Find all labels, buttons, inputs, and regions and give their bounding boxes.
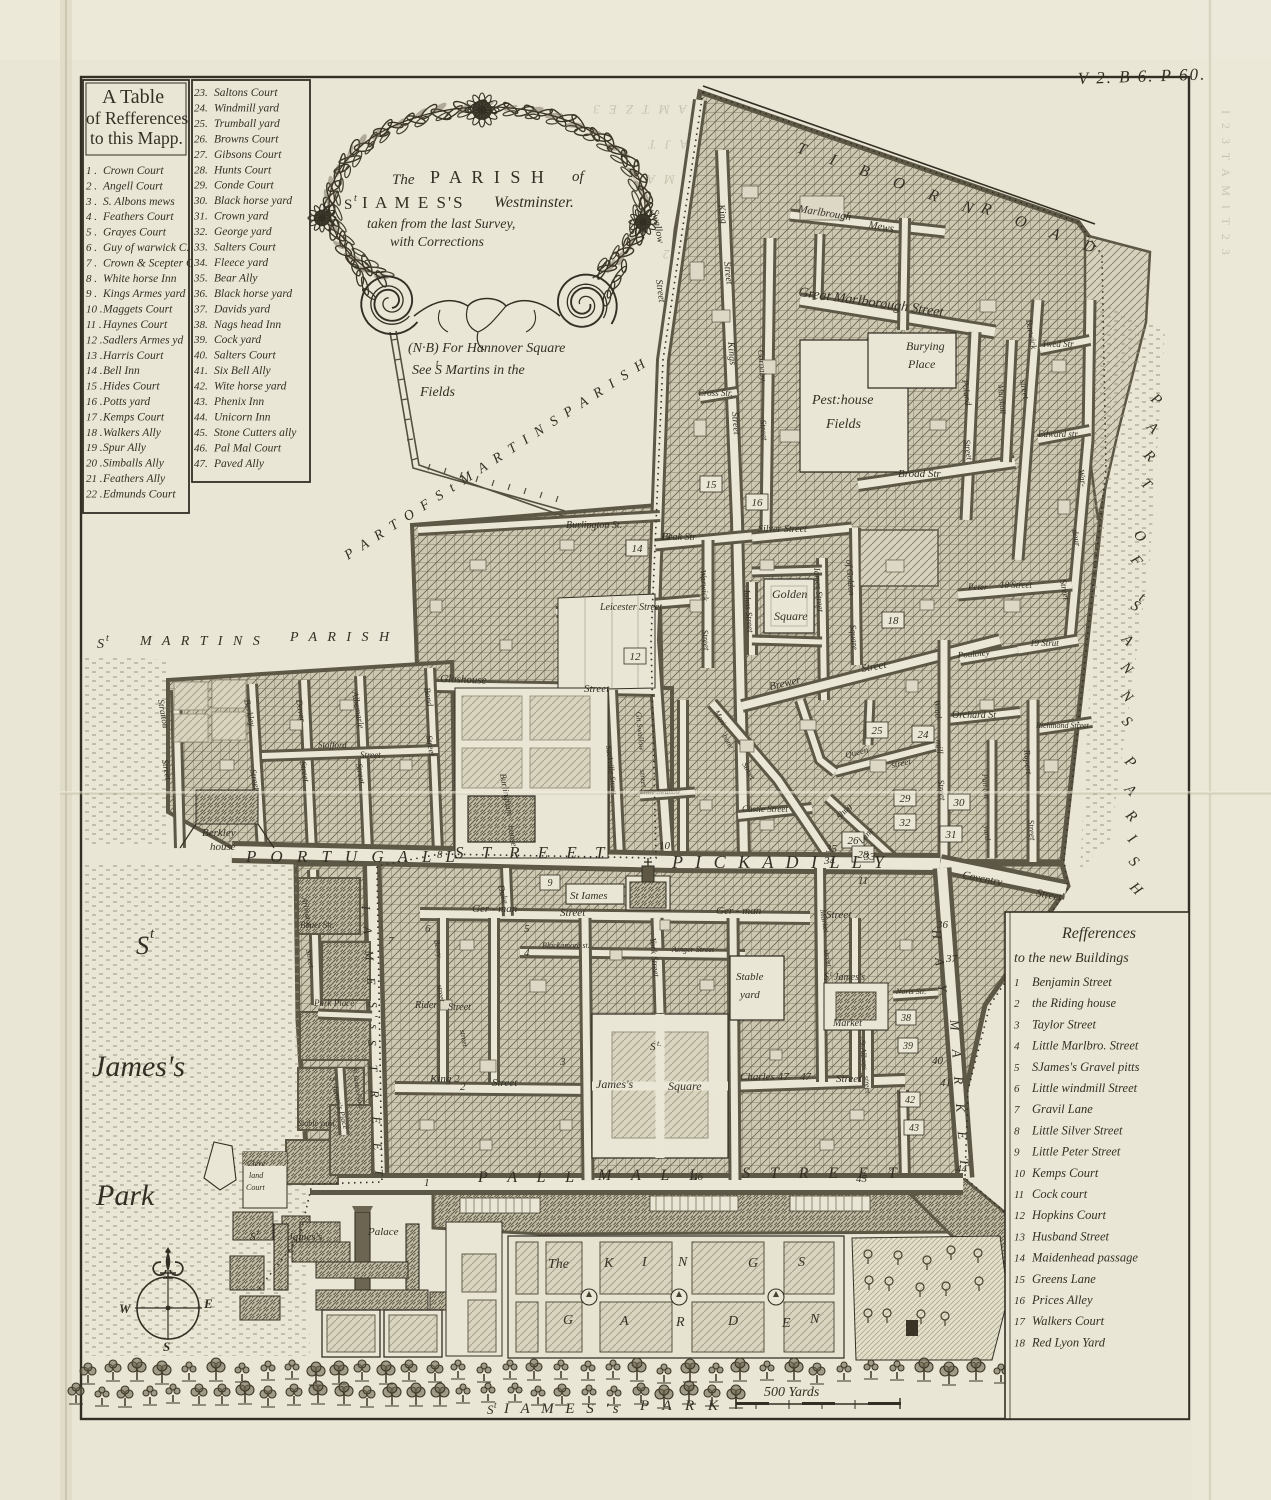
svg-text:P A L L: P A L L: [477, 1169, 582, 1186]
svg-text:Feathers Court: Feathers Court: [102, 211, 174, 223]
svg-text:Blackamore st.: Blackamore st.: [542, 941, 590, 950]
svg-text:30.: 30.: [193, 195, 208, 207]
svg-text:yard: yard: [982, 824, 992, 841]
svg-text:yard: yard: [739, 989, 760, 1001]
svg-text:38: 38: [900, 1013, 911, 1024]
svg-text:11: 11: [858, 875, 868, 887]
svg-text:Cleve: Cleve: [247, 1159, 266, 1168]
svg-text:11 .: 11 .: [86, 319, 102, 331]
svg-text:41: 41: [940, 1077, 951, 1089]
svg-text:S T R E E T: S T R E E T: [455, 843, 612, 862]
svg-text:Harris Court: Harris Court: [102, 350, 164, 362]
svg-text:7: 7: [1014, 1104, 1020, 1116]
svg-text:James's: James's: [92, 1050, 185, 1083]
svg-text:W: W: [119, 1301, 132, 1316]
svg-text:Black horse yard: Black horse yard: [214, 195, 292, 207]
svg-text:Wite horse yard: Wite horse yard: [214, 381, 287, 393]
svg-text:St Iames: St Iames: [570, 890, 608, 902]
svg-text:Orchard St: Orchard St: [952, 710, 996, 721]
svg-text:7 .: 7 .: [86, 257, 97, 269]
svg-text:4: 4: [524, 947, 530, 959]
svg-text:12: 12: [1014, 1210, 1026, 1222]
svg-text:Street: Street: [560, 907, 586, 919]
svg-text:10 .: 10 .: [86, 304, 103, 316]
svg-text:Silver Street: Silver Street: [758, 524, 807, 535]
svg-text:Noris Str.: Noris Str.: [895, 987, 926, 996]
svg-text:E: E: [203, 1296, 213, 1311]
svg-text:of Refferences: of Refferences: [86, 108, 188, 128]
svg-text:31.: 31.: [193, 211, 208, 223]
svg-text:A: A: [619, 1314, 629, 1329]
svg-text:4: 4: [1014, 1041, 1020, 1053]
svg-text:17: 17: [1014, 1316, 1026, 1328]
svg-text:6 .: 6 .: [86, 242, 97, 254]
svg-text:Walkers Court: Walkers Court: [1032, 1314, 1105, 1328]
svg-text:P A R I S H: P A R I S H: [289, 630, 393, 645]
svg-text:Broad Str: Broad Str: [898, 468, 941, 480]
svg-text:Hunts Court: Hunts Court: [213, 164, 272, 176]
svg-text:Street: Street: [729, 411, 742, 435]
svg-text:18: 18: [1014, 1337, 1026, 1349]
svg-text:31: 31: [945, 829, 957, 841]
svg-text:Kings: Kings: [725, 340, 738, 365]
svg-text:S: S: [487, 1402, 494, 1417]
svg-text:Street: Street: [448, 1002, 471, 1013]
svg-text:Edward str: Edward str: [1037, 429, 1078, 439]
svg-text:Potts yard: Potts yard: [102, 396, 150, 408]
svg-text:Street: Street: [584, 683, 610, 695]
svg-text:Fields: Fields: [419, 385, 456, 400]
svg-text:Phenix Inn: Phenix Inn: [213, 396, 264, 408]
svg-text:Wind-: Wind-: [932, 699, 944, 721]
svg-text:500 Yards: 500 Yards: [764, 1385, 820, 1400]
svg-text:Ger - man: Ger - man: [472, 903, 518, 915]
svg-text:10: 10: [1014, 1168, 1026, 1180]
svg-text:Salters Court: Salters Court: [214, 242, 276, 254]
svg-text:22 .: 22 .: [86, 488, 103, 500]
svg-text:Angell Court: Angell Court: [102, 180, 164, 192]
svg-text:George yard: George yard: [214, 226, 272, 238]
svg-text:8: 8: [1014, 1125, 1020, 1137]
svg-text:N: N: [677, 1255, 688, 1270]
svg-text:47.: 47.: [194, 458, 208, 470]
svg-text:Beak Str: Beak Str: [662, 532, 696, 543]
svg-text:Ger - man: Ger - man: [716, 905, 762, 917]
svg-text:Pal Mal Court: Pal Mal Court: [213, 442, 282, 454]
svg-text:1 .: 1 .: [86, 165, 97, 177]
svg-text:Street: Street: [1026, 819, 1038, 841]
svg-text:32.: 32.: [193, 226, 208, 238]
svg-text:K: K: [603, 1256, 614, 1271]
svg-text:Walkers Ally: Walkers Ally: [103, 427, 162, 439]
svg-text:Husband Street: Husband Street: [1031, 1229, 1109, 1243]
svg-text:Maggets Court: Maggets Court: [102, 304, 173, 316]
svg-text:10: 10: [659, 840, 671, 852]
svg-text:Refferences: Refferences: [1061, 925, 1136, 942]
svg-text:S: S: [650, 1041, 656, 1053]
svg-text:Square: Square: [668, 1079, 702, 1093]
svg-text:Richmond Street: Richmond Street: [1035, 721, 1090, 730]
svg-text:Saltons Court: Saltons Court: [214, 87, 278, 99]
svg-text:Square: Square: [774, 609, 808, 623]
svg-text:Six Bell Ally: Six Bell Ally: [214, 365, 272, 377]
svg-text:t.: t.: [657, 1039, 661, 1048]
svg-text:S: S: [824, 972, 829, 983]
svg-text:Stable: Stable: [736, 971, 764, 983]
svg-text:I A M E S 's: I A M E S 's: [503, 1401, 623, 1417]
svg-text:34.: 34.: [193, 257, 208, 269]
svg-text:S: S: [97, 637, 104, 652]
svg-text:1: 1: [1014, 977, 1020, 989]
svg-text:Castle Street: Castle Street: [742, 804, 788, 814]
svg-text:21 .: 21 .: [86, 473, 103, 485]
svg-text:12: 12: [630, 651, 642, 663]
svg-text:38.: 38.: [193, 319, 208, 331]
svg-text:I 2 3 T A M I T 2 3: I 2 3 T A M I T 2 3: [1219, 110, 1233, 258]
svg-text:24: 24: [918, 729, 930, 741]
svg-text:to the new Buildings: to the new Buildings: [1014, 951, 1129, 966]
svg-text:The: The: [548, 1257, 569, 1272]
svg-text:James's: James's: [288, 1231, 322, 1243]
svg-text:4 .: 4 .: [86, 211, 97, 223]
svg-text:Park: Park: [95, 1179, 155, 1212]
svg-text:Kings Armes yard: Kings Armes yard: [102, 288, 186, 300]
svg-text:Little Marlbro. Street: Little Marlbro. Street: [1031, 1039, 1139, 1053]
svg-text:13 .: 13 .: [86, 350, 103, 362]
svg-text:15: 15: [706, 479, 718, 491]
svg-text:Spur Ally: Spur Ally: [103, 442, 147, 454]
svg-text:S: S: [163, 1339, 170, 1354]
svg-text:12 .: 12 .: [86, 334, 103, 346]
svg-text:the Riding house: the Riding house: [1032, 996, 1116, 1010]
svg-text:Cross Str.: Cross Str.: [698, 388, 733, 398]
svg-text:Little windmill Street: Little windmill Street: [1031, 1081, 1138, 1095]
svg-text:18 Street: 18 Street: [1000, 580, 1032, 590]
svg-text:Nags head Inn: Nags head Inn: [213, 319, 281, 331]
svg-text:Street: Street: [492, 1077, 518, 1089]
svg-text:Sadlers Armes yd: Sadlers Armes yd: [103, 334, 184, 346]
svg-text:Gravil Lane: Gravil Lane: [1032, 1102, 1093, 1116]
svg-text:mill: mill: [934, 739, 945, 754]
svg-text:14 .: 14 .: [86, 365, 103, 377]
svg-text:26.: 26.: [194, 133, 208, 145]
svg-text:35.: 35.: [193, 272, 208, 284]
svg-text:Place: Place: [907, 357, 936, 371]
svg-text:Peter: Peter: [967, 582, 988, 592]
svg-text:S: S: [344, 197, 352, 213]
svg-text:16: 16: [752, 497, 764, 509]
svg-text:(N·B) For Hannover Square: (N·B) For Hannover Square: [408, 341, 565, 356]
svg-text:taken from the last Survey,: taken from the last Survey,: [367, 217, 515, 232]
svg-text:Westminster.: Westminster.: [494, 194, 574, 211]
svg-text:44.: 44.: [194, 411, 208, 423]
svg-text:Davids yard: Davids yard: [213, 303, 270, 315]
svg-text:M A R T I N S: M A R T I N S: [139, 634, 263, 649]
svg-text:Street: Street: [836, 1073, 862, 1085]
svg-text:S: S: [136, 931, 149, 960]
svg-text:Gibsons Court: Gibsons Court: [214, 149, 282, 161]
svg-text:15 .: 15 .: [86, 381, 103, 393]
svg-text:16: 16: [1014, 1295, 1026, 1307]
svg-text:Kemps Court: Kemps Court: [1031, 1166, 1099, 1180]
svg-text:Palace: Palace: [367, 1226, 399, 1238]
svg-text:S T R E E T: S T R E E T: [742, 1165, 905, 1182]
svg-text:Guy of warwick C.: Guy of warwick C.: [103, 242, 189, 254]
svg-text:Bear Ally: Bear Ally: [214, 272, 258, 284]
svg-text:to this Mapp.: to this Mapp.: [90, 128, 183, 148]
svg-text:2: 2: [460, 1081, 466, 1093]
svg-text:Fleece yard: Fleece yard: [213, 257, 268, 269]
svg-text:Rider: Rider: [414, 1000, 437, 1011]
svg-text:R: R: [675, 1315, 685, 1330]
svg-text:Cock court: Cock court: [1032, 1187, 1088, 1201]
svg-text:41.: 41.: [194, 365, 208, 377]
svg-text:5: 5: [1014, 1062, 1020, 1074]
svg-text:2 .: 2 .: [86, 180, 97, 192]
svg-text:Street: Street: [360, 750, 381, 760]
svg-text:20 .: 20 .: [86, 458, 103, 470]
svg-text:Fields: Fields: [825, 417, 862, 432]
svg-text:Hopkins Court: Hopkins Court: [1031, 1208, 1106, 1222]
svg-text:45.: 45.: [194, 427, 208, 439]
svg-text:Glashouse: Glashouse: [440, 673, 487, 687]
svg-text:house: house: [210, 841, 236, 853]
svg-text:Kemps Court: Kemps Court: [102, 411, 165, 423]
svg-text:Stafford: Stafford: [318, 740, 347, 750]
svg-text:D: D: [727, 1314, 738, 1329]
svg-text:33.: 33.: [193, 242, 208, 254]
svg-text:25.: 25.: [194, 118, 208, 130]
svg-text:43.: 43.: [194, 396, 208, 408]
svg-text:29.: 29.: [194, 180, 208, 192]
svg-text:Trumball yard: Trumball yard: [214, 118, 280, 130]
svg-text:9: 9: [1014, 1147, 1020, 1159]
svg-text:M A L L: M A L L: [597, 1167, 706, 1184]
svg-text:Stone Cutters ally: Stone Cutters ally: [214, 427, 297, 439]
svg-text:SJames's Gravel pitts: SJames's Gravel pitts: [1032, 1060, 1140, 1074]
svg-text:32: 32: [899, 817, 912, 829]
svg-text:Street: Street: [826, 909, 852, 921]
svg-text:42: 42: [905, 1095, 915, 1106]
svg-text:25: 25: [872, 725, 884, 737]
svg-text:I A M T Z E 3: I A M T Z E 3: [590, 102, 701, 117]
svg-text:S: S: [798, 1255, 805, 1270]
svg-text:1: 1: [424, 1177, 430, 1189]
svg-text:Bell Inn: Bell Inn: [103, 365, 140, 377]
svg-text:27.: 27.: [194, 149, 208, 161]
svg-text:3: 3: [559, 1056, 566, 1068]
svg-text:King 2: King 2: [429, 1073, 460, 1085]
svg-text:Berkley: Berkley: [202, 827, 236, 839]
svg-text:Street: Street: [936, 779, 948, 801]
svg-text:14: 14: [632, 543, 644, 555]
svg-text:Simballs Ally: Simballs Ally: [103, 458, 165, 470]
svg-text:with Corrections: with Corrections: [390, 235, 485, 250]
svg-text:Greens Lane: Greens Lane: [1032, 1272, 1096, 1286]
svg-text:3 .: 3 .: [85, 196, 97, 208]
svg-text:Prices Alley: Prices Alley: [1031, 1293, 1093, 1307]
svg-text:Market: Market: [832, 1018, 862, 1029]
svg-text:P O R T U G A L L: P O R T U G A L L: [245, 847, 460, 866]
svg-text:Pest:house: Pest:house: [811, 393, 873, 408]
svg-text:P I C K A D I L L Y: P I C K A D I L L Y: [671, 852, 888, 872]
svg-text:Crown Court: Crown Court: [103, 165, 164, 177]
svg-text:39: 39: [902, 1041, 913, 1052]
svg-text:Burlington St.: Burlington St.: [566, 520, 622, 531]
svg-text:Benjamin Street: Benjamin Street: [1032, 975, 1112, 989]
svg-text:Court: Court: [246, 1183, 265, 1192]
svg-text:14: 14: [1014, 1253, 1026, 1265]
svg-text:9 .: 9 .: [86, 288, 97, 300]
svg-text:46.: 46.: [194, 442, 208, 454]
svg-text:Edmunds Court: Edmunds Court: [102, 488, 176, 500]
svg-text:9: 9: [548, 878, 553, 889]
svg-text:A Table: A Table: [102, 86, 164, 108]
svg-text:t: t: [354, 193, 357, 204]
svg-text:Stable yard: Stable yard: [298, 1119, 335, 1128]
svg-text:47: 47: [800, 1071, 812, 1083]
svg-text:8 .: 8 .: [86, 273, 97, 285]
svg-text:P A R I S H: P A R I S H: [430, 167, 547, 187]
svg-text:See S Martins in the: See S Martins in the: [412, 363, 525, 378]
svg-text:Feathers Ally: Feathers Ally: [102, 473, 166, 485]
svg-text:Street: Street: [700, 629, 712, 651]
svg-text:24.: 24.: [194, 102, 208, 114]
svg-text:37.: 37.: [193, 303, 208, 315]
svg-text:Hides Court: Hides Court: [102, 381, 160, 393]
svg-text:S: S: [250, 1231, 256, 1243]
svg-text:5 .: 5 .: [86, 227, 97, 239]
svg-text:Windmill yard: Windmill yard: [214, 102, 279, 114]
svg-text:42.: 42.: [194, 381, 208, 393]
svg-text:11: 11: [1014, 1189, 1024, 1201]
svg-text:19 .: 19 .: [86, 442, 103, 454]
svg-text:Little Silver Street: Little Silver Street: [1031, 1123, 1123, 1137]
svg-text:S. Albons mews: S. Albons mews: [103, 196, 175, 208]
svg-text:James's: James's: [834, 972, 865, 983]
svg-text:Grayes Court: Grayes Court: [103, 227, 167, 239]
svg-text:Paved Ally: Paved Ally: [213, 458, 265, 470]
svg-text:Golden: Golden: [772, 587, 807, 601]
svg-text:23.: 23.: [194, 87, 208, 99]
svg-text:P A R K: P A R K: [639, 1398, 723, 1414]
svg-text:43: 43: [909, 1123, 919, 1134]
svg-text:Unicorn Inn: Unicorn Inn: [214, 411, 271, 423]
svg-text:land: land: [249, 1171, 264, 1180]
svg-text:16 .: 16 .: [86, 396, 103, 408]
svg-text:Twed Str: Twed Str: [1042, 339, 1074, 349]
svg-text:N: N: [809, 1312, 820, 1327]
svg-text:Browns Court: Browns Court: [214, 133, 279, 145]
svg-text:Little Peter Street: Little Peter Street: [1031, 1145, 1121, 1159]
svg-text:Crown yard: Crown yard: [214, 211, 269, 223]
svg-text:of: of: [572, 169, 586, 185]
svg-text:40.: 40.: [194, 350, 208, 362]
svg-text:13: 13: [1014, 1231, 1026, 1243]
svg-text:18: 18: [888, 615, 900, 627]
svg-text:Black horse yard: Black horse yard: [214, 288, 292, 300]
svg-text:E: E: [781, 1316, 791, 1331]
svg-text:Ainger Street: Ainger Street: [671, 945, 715, 954]
svg-text:Cock yard: Cock yard: [214, 334, 261, 346]
svg-text:7: 7: [388, 935, 394, 947]
svg-text:James's: James's: [596, 1077, 634, 1091]
svg-text:Charles 47: Charles 47: [740, 1071, 789, 1083]
svg-text:White horse Inn: White horse Inn: [103, 273, 177, 285]
svg-text:15: 15: [1014, 1274, 1026, 1286]
svg-text:3: 3: [1013, 1019, 1020, 1031]
svg-text:G: G: [563, 1313, 573, 1328]
svg-text:2: 2: [1014, 998, 1020, 1010]
svg-text:17 .: 17 .: [86, 411, 103, 423]
svg-text:Haynes Court: Haynes Court: [102, 319, 168, 331]
svg-text:Taylor Street: Taylor Street: [1032, 1017, 1097, 1031]
svg-text:Street: Street: [758, 419, 770, 441]
svg-text:Benet Str.: Benet Str.: [300, 920, 335, 930]
svg-text:Leicester Street: Leicester Street: [599, 602, 662, 613]
svg-text:street: street: [862, 1075, 873, 1094]
svg-text:t: t: [106, 633, 109, 644]
svg-text:18 .: 18 .: [86, 427, 103, 439]
svg-text:Maidenhead passage: Maidenhead passage: [1031, 1251, 1138, 1265]
svg-text:5: 5: [524, 923, 530, 935]
svg-text:G: G: [748, 1256, 758, 1271]
svg-text:6: 6: [1014, 1083, 1020, 1095]
svg-text:Crown & Scepter C.: Crown & Scepter C.: [103, 257, 197, 269]
svg-text:28.: 28.: [194, 164, 208, 176]
svg-text:6: 6: [425, 923, 431, 935]
svg-text:Burying: Burying: [906, 339, 945, 353]
svg-text:36.: 36.: [193, 288, 208, 300]
svg-text:40: 40: [932, 1055, 944, 1067]
svg-text:Conde Court: Conde Court: [214, 180, 275, 192]
svg-text:19 Strut: 19 Strut: [1030, 638, 1059, 648]
svg-text:I A M E S'S: I A M E S'S: [362, 193, 465, 212]
svg-text:39.: 39.: [193, 334, 208, 346]
svg-text:Park Place: Park Place: [313, 998, 354, 1008]
svg-text:30: 30: [953, 797, 966, 809]
svg-text:Salters Court: Salters Court: [214, 350, 276, 362]
svg-text:Red Lyon Yard: Red Lyon Yard: [1031, 1335, 1106, 1349]
svg-text:The: The: [392, 172, 415, 188]
svg-text:street: street: [638, 769, 649, 788]
